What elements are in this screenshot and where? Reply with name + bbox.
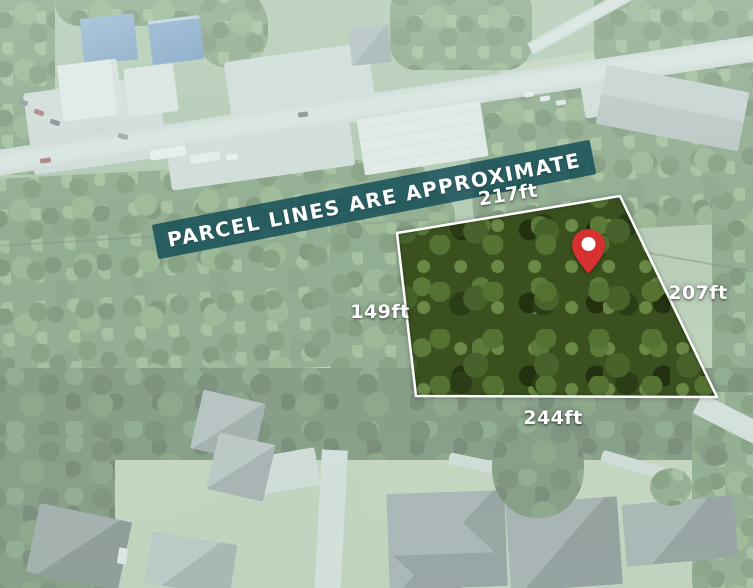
pin-center-dot (582, 237, 596, 251)
measurement-label-bottom: 244ft (523, 407, 583, 429)
location-pin-icon (571, 228, 606, 275)
measurement-label-right: 207ft (668, 282, 728, 304)
pin-body (572, 229, 605, 274)
parcel-outline (0, 0, 753, 588)
aerial-parcel-photo: PARCEL LINES ARE APPROXIMATE 217ft 207ft… (0, 0, 753, 588)
measurement-label-left: 149ft (350, 301, 410, 323)
